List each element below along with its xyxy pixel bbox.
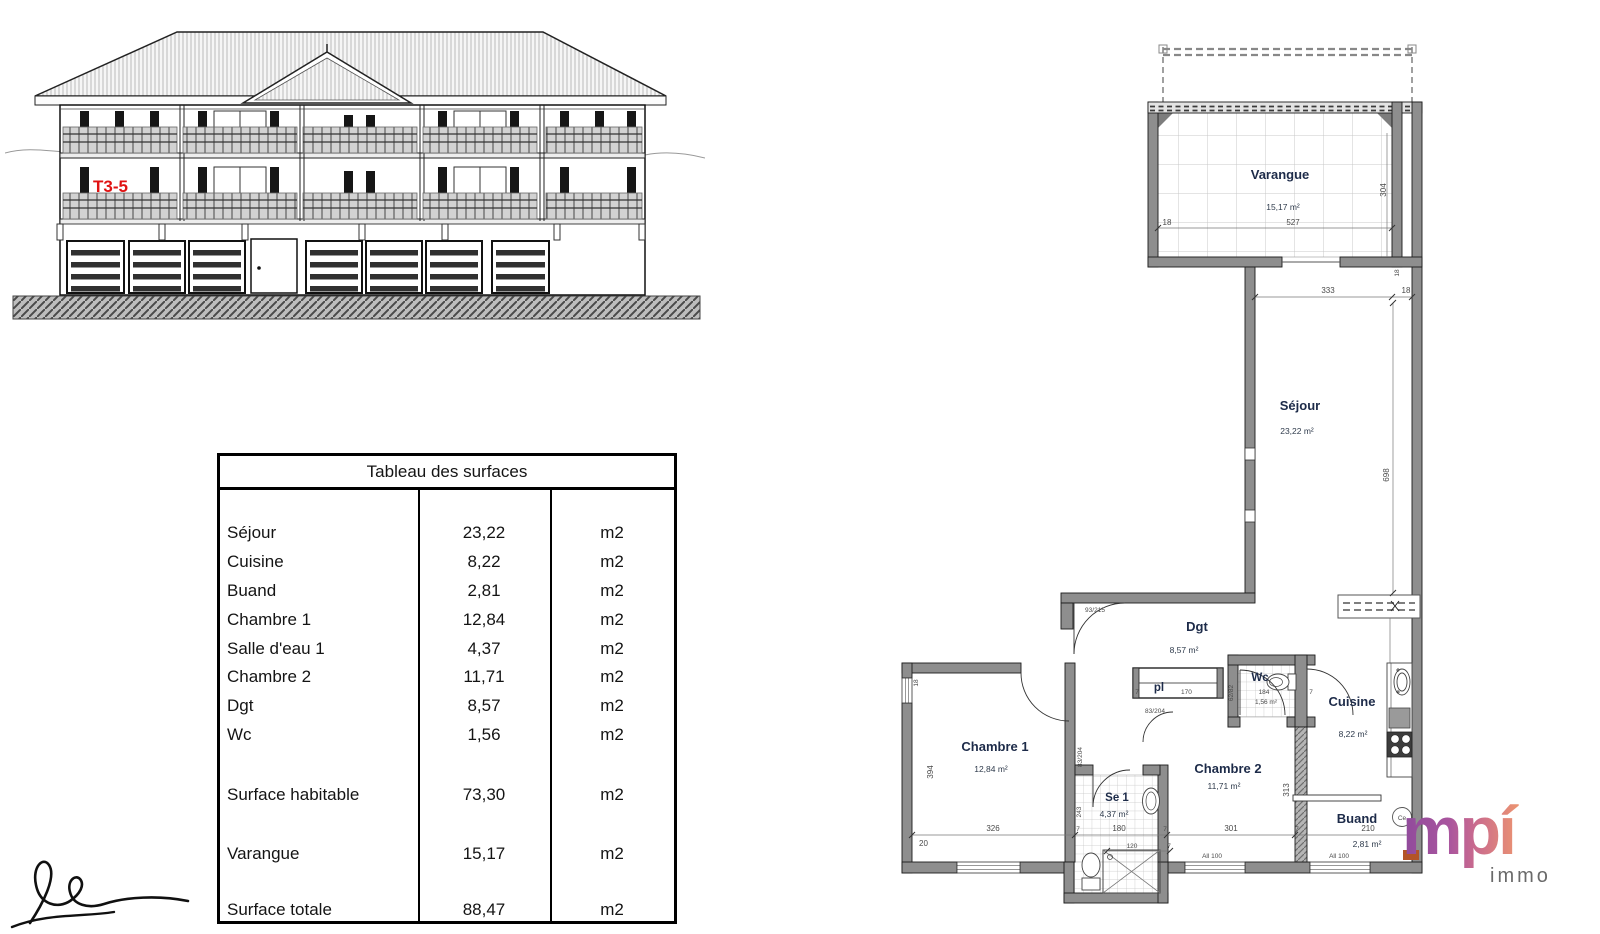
hip-roof bbox=[35, 32, 666, 105]
row-value: 8,57 bbox=[418, 696, 550, 716]
table-row-varangue: Varangue 15,17 m2 bbox=[220, 839, 674, 868]
table-divider-1 bbox=[418, 490, 420, 921]
mpi-immo-logo: mpí immo bbox=[1402, 788, 1577, 893]
dim-18: 18 bbox=[1402, 286, 1411, 295]
dim-243: 243 bbox=[1076, 806, 1083, 817]
dim-394: 394 bbox=[926, 765, 935, 779]
row-unit: m2 bbox=[550, 844, 674, 864]
dim-313: 313 bbox=[1282, 783, 1291, 797]
dim-door-wc: 62/82 bbox=[1228, 684, 1235, 701]
room-label-cuisine: Cuisine bbox=[1329, 694, 1376, 709]
dim-210: 210 bbox=[1361, 824, 1375, 833]
kitchen-overhead-cabinet bbox=[1338, 595, 1420, 663]
unit-label-t3-5: T3-5 bbox=[93, 177, 128, 196]
dim-170: 170 bbox=[1181, 689, 1192, 696]
row-value: 4,37 bbox=[418, 639, 550, 659]
table-divider-2 bbox=[550, 490, 552, 921]
logo-wordmark: mpí bbox=[1402, 793, 1519, 869]
row-label: Buand bbox=[220, 581, 418, 601]
table-row: Chambre 2 11,71 m2 bbox=[220, 663, 674, 692]
garage-doors bbox=[67, 241, 549, 293]
dim-allege: All 100 bbox=[1202, 853, 1222, 860]
building-elevation-drawing: T3-5 bbox=[5, 5, 705, 323]
row-value: 23,22 bbox=[418, 523, 550, 543]
dim-18: 18 bbox=[1163, 218, 1172, 227]
row-value: 12,84 bbox=[418, 610, 550, 630]
dim-301: 301 bbox=[1224, 824, 1238, 833]
dim-allege: All 100 bbox=[1329, 853, 1349, 860]
floor-plan-drawing: Varangue 15,17 m² Séjour 23,22 m² Dgt 8,… bbox=[860, 20, 1460, 934]
row-unit: m2 bbox=[550, 523, 674, 543]
dim-304: 304 bbox=[1379, 183, 1388, 197]
table-row: Dgt 8,57 m2 bbox=[220, 692, 674, 721]
floor-slab-band bbox=[60, 153, 645, 158]
dim-527: 527 bbox=[1286, 218, 1300, 227]
dim-7: 7 bbox=[1167, 843, 1171, 850]
row-unit: m2 bbox=[550, 900, 674, 920]
row-unit: m2 bbox=[550, 581, 674, 601]
upper-balcony-railings bbox=[63, 127, 642, 153]
kitchen-unit bbox=[1389, 708, 1410, 728]
room-area-buand: 2,81 m² bbox=[1353, 839, 1382, 849]
kitchen-counter bbox=[1387, 663, 1412, 777]
row-value: 15,17 bbox=[418, 844, 550, 864]
room-label-wc: Wc bbox=[1251, 672, 1269, 684]
table-row-surface-totale: Surface totale 88,47 m2 bbox=[220, 896, 674, 925]
room-label-pl: pl bbox=[1154, 682, 1164, 694]
dim-18: 18 bbox=[913, 679, 920, 687]
row-unit: m2 bbox=[550, 696, 674, 716]
table-row: Chambre 1 12,84 m2 bbox=[220, 605, 674, 634]
lower-balcony-railings bbox=[63, 193, 642, 219]
row-value: 88,47 bbox=[418, 900, 550, 920]
row-unit: m2 bbox=[550, 667, 674, 687]
row-value: 2,81 bbox=[418, 581, 550, 601]
plan-document-page: T3-5 bbox=[0, 0, 1600, 934]
row-value: 8,22 bbox=[418, 552, 550, 572]
room-area-wc: 1,56 m² bbox=[1255, 699, 1278, 706]
row-label: Varangue bbox=[220, 844, 418, 864]
dim-door-83204: 83/204 bbox=[1145, 708, 1165, 715]
dim-wc-width: 184 bbox=[1259, 689, 1270, 696]
wc-toilet bbox=[1267, 674, 1296, 690]
se1-toilet-bowl bbox=[1082, 853, 1100, 877]
dim-120: 120 bbox=[1127, 843, 1138, 850]
row-value: 1,56 bbox=[418, 725, 550, 745]
dim-180: 180 bbox=[1112, 824, 1126, 833]
room-area-chambre2: 11,71 m² bbox=[1208, 781, 1241, 791]
row-label: Dgt bbox=[220, 696, 418, 716]
dim-326: 326 bbox=[986, 824, 1000, 833]
context-line-right bbox=[645, 153, 705, 158]
room-area-se1: 4,37 m² bbox=[1100, 809, 1129, 819]
dim-7: 7 bbox=[1295, 826, 1299, 833]
room-label-se1: Se 1 bbox=[1105, 792, 1129, 804]
entrance-door bbox=[251, 239, 297, 293]
row-label: Séjour bbox=[220, 523, 418, 543]
ground-hatch-band bbox=[13, 296, 700, 319]
room-area-chambre1: 12,84 m² bbox=[974, 764, 1008, 774]
room-label-sejour: Séjour bbox=[1280, 398, 1320, 413]
roof-overhang-dashed bbox=[1159, 45, 1416, 102]
surfaces-table-title: Tableau des surfaces bbox=[220, 456, 674, 490]
table-row-surface-habitable: Surface habitable 73,30 m2 bbox=[220, 780, 674, 809]
room-label-varangue: Varangue bbox=[1251, 167, 1310, 182]
surfaces-table-body: Séjour 23,22 m2 Cuisine 8,22 m2 Buand 2,… bbox=[220, 490, 674, 925]
row-label: Salle d'eau 1 bbox=[220, 639, 418, 659]
table-row: Salle d'eau 1 4,37 m2 bbox=[220, 634, 674, 663]
closet-pl bbox=[1133, 668, 1223, 698]
row-unit: m2 bbox=[550, 639, 674, 659]
row-label: Surface totale bbox=[220, 900, 418, 920]
row-label: Cuisine bbox=[220, 552, 418, 572]
row-label: Wc bbox=[220, 725, 418, 745]
logo-subtext: immo bbox=[1490, 865, 1551, 887]
balcony-slab-band bbox=[60, 219, 645, 224]
se1-toilet-tank bbox=[1082, 878, 1100, 890]
dim-7: 7 bbox=[1076, 826, 1080, 833]
row-label: Surface habitable bbox=[220, 785, 418, 805]
room-label-dgt: Dgt bbox=[1186, 619, 1208, 634]
dim-door-83204: 83/204 bbox=[1077, 747, 1084, 767]
row-unit: m2 bbox=[550, 552, 674, 572]
buand-fittings bbox=[1293, 795, 1419, 860]
table-row: Cuisine 8,22 m2 bbox=[220, 548, 674, 577]
room-label-chambre2: Chambre 2 bbox=[1194, 761, 1261, 776]
dim-18: 18 bbox=[1394, 269, 1401, 277]
row-label: Chambre 2 bbox=[220, 667, 418, 687]
dim-7: 7 bbox=[1163, 826, 1167, 833]
context-line-left bbox=[5, 150, 67, 153]
varangue-tiled-floor bbox=[1158, 113, 1392, 257]
surfaces-table: Tableau des surfaces Séjour 23,22 m2 Cui… bbox=[217, 453, 677, 924]
sejour-wall-notch bbox=[1245, 510, 1255, 522]
dim-333: 333 bbox=[1321, 286, 1335, 295]
room-area-cuisine: 8,22 m² bbox=[1339, 729, 1368, 739]
row-unit: m2 bbox=[550, 785, 674, 805]
room-area-varangue: 15,17 m² bbox=[1266, 202, 1300, 212]
row-unit: m2 bbox=[550, 610, 674, 630]
dim-698: 698 bbox=[1382, 468, 1391, 482]
room-area-sejour: 23,22 m² bbox=[1280, 426, 1314, 436]
room-label-chambre1: Chambre 1 bbox=[961, 739, 1028, 754]
sejour-wall-notch bbox=[1245, 448, 1255, 460]
signature-scribble bbox=[2, 843, 212, 934]
row-unit: m2 bbox=[550, 725, 674, 745]
row-value: 73,30 bbox=[418, 785, 550, 805]
dim-20: 20 bbox=[919, 839, 928, 848]
row-label: Chambre 1 bbox=[220, 610, 418, 630]
dim-7: 7 bbox=[1309, 689, 1313, 696]
table-row: Buand 2,81 m2 bbox=[220, 577, 674, 606]
dim-7: 7 bbox=[1135, 689, 1139, 696]
room-area-dgt: 8,57 m² bbox=[1170, 645, 1199, 655]
table-row: Wc 1,56 m2 bbox=[220, 721, 674, 750]
row-value: 11,71 bbox=[418, 667, 550, 687]
table-row: Séjour 23,22 m2 bbox=[220, 519, 674, 548]
dim-door-entrance: 93/215 bbox=[1085, 607, 1105, 614]
